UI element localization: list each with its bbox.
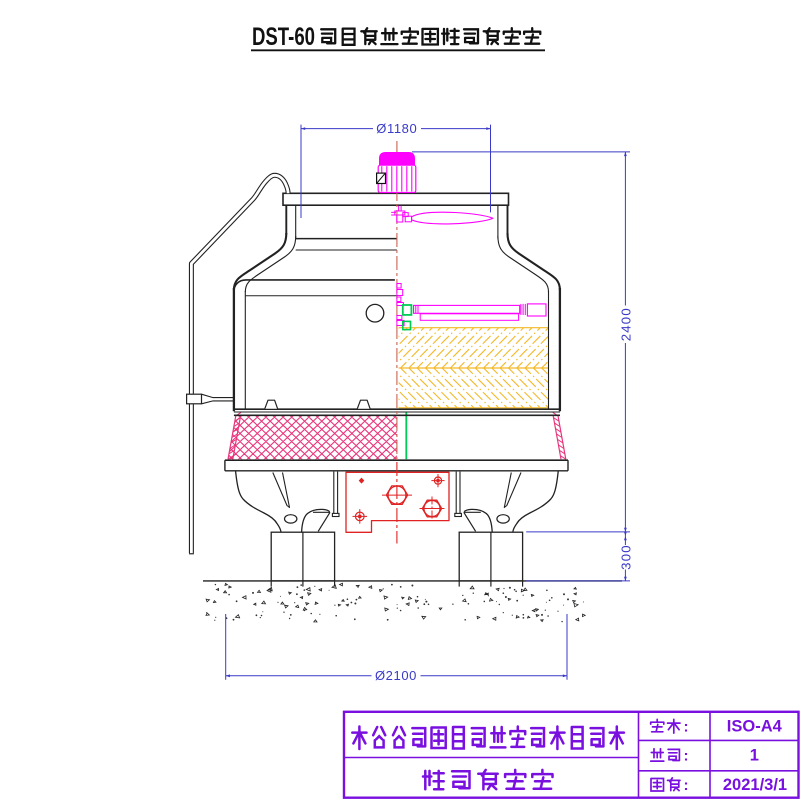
- svg-text:Ø1180: Ø1180: [376, 121, 417, 136]
- svg-text::: :: [684, 777, 689, 794]
- svg-text:2021/3/1: 2021/3/1: [723, 776, 787, 794]
- svg-text:DST-60: DST-60: [252, 23, 315, 51]
- svg-text::: :: [684, 719, 689, 736]
- svg-text:2400: 2400: [618, 307, 633, 341]
- svg-text:Ø2100: Ø2100: [375, 668, 417, 683]
- svg-text:300: 300: [618, 544, 633, 570]
- svg-text::: :: [684, 748, 689, 765]
- svg-text:ISO-A4: ISO-A4: [727, 718, 783, 736]
- svg-text:1: 1: [750, 747, 759, 765]
